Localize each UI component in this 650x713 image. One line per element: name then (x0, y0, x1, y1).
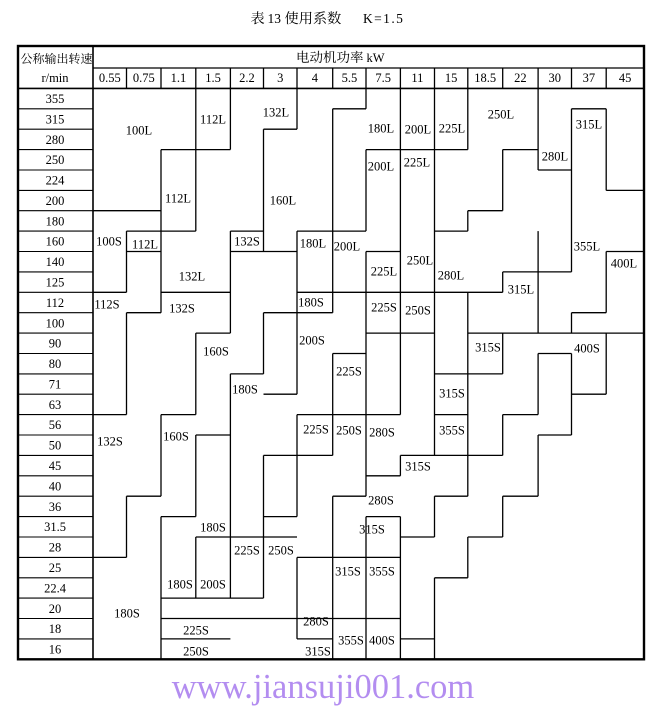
svg-text:250S: 250S (336, 424, 362, 438)
svg-text:63: 63 (49, 398, 62, 412)
svg-text:132S: 132S (97, 435, 123, 449)
svg-text:40: 40 (49, 479, 62, 493)
svg-text:225L: 225L (439, 122, 465, 136)
svg-text:13: 13 (268, 11, 282, 26)
svg-text:315L: 315L (576, 118, 602, 132)
svg-text:225S: 225S (234, 544, 260, 558)
svg-text:280: 280 (46, 133, 65, 147)
svg-text:132L: 132L (179, 270, 205, 284)
svg-text:315S: 315S (439, 387, 465, 401)
svg-text:200S: 200S (299, 334, 325, 348)
svg-text:180S: 180S (167, 578, 193, 592)
svg-text:200S: 200S (200, 578, 226, 592)
svg-text:1.5: 1.5 (205, 71, 221, 85)
svg-text:200: 200 (46, 194, 65, 208)
svg-text:45: 45 (49, 459, 62, 473)
svg-text:15: 15 (445, 71, 458, 85)
svg-text:315S: 315S (475, 341, 501, 355)
svg-text:36: 36 (49, 500, 62, 514)
svg-text:20: 20 (49, 602, 62, 616)
svg-text:22: 22 (514, 71, 527, 85)
svg-text:125: 125 (46, 276, 65, 290)
svg-text:28: 28 (49, 541, 62, 555)
svg-text:355L: 355L (574, 240, 600, 254)
svg-text:315: 315 (46, 112, 65, 126)
svg-text:kW: kW (367, 51, 385, 65)
svg-text:280S: 280S (368, 494, 394, 508)
svg-text:132S: 132S (169, 302, 195, 316)
svg-text:200L: 200L (334, 240, 360, 254)
svg-text:132S: 132S (234, 235, 260, 249)
svg-text:31.5: 31.5 (44, 520, 66, 534)
svg-text:315S: 315S (359, 523, 385, 537)
svg-text:7.5: 7.5 (375, 71, 391, 85)
svg-text:160S: 160S (163, 430, 189, 444)
svg-text:160: 160 (46, 235, 65, 249)
svg-text:22.4: 22.4 (44, 581, 67, 595)
svg-text:56: 56 (49, 418, 62, 432)
svg-text:225S: 225S (183, 624, 209, 638)
svg-text:90: 90 (49, 337, 62, 351)
svg-text:100: 100 (46, 316, 65, 330)
svg-text:400L: 400L (611, 257, 637, 271)
svg-text:180S: 180S (298, 296, 324, 310)
svg-text:18.5: 18.5 (474, 71, 496, 85)
svg-text:355: 355 (46, 92, 65, 106)
svg-text:140: 140 (46, 255, 65, 269)
svg-text:112L: 112L (200, 113, 226, 127)
svg-text:200L: 200L (405, 123, 431, 137)
svg-text:30: 30 (549, 71, 562, 85)
svg-text:160L: 160L (270, 194, 296, 208)
svg-text:K=1.5: K=1.5 (363, 11, 404, 26)
svg-text:1.1: 1.1 (171, 71, 187, 85)
svg-text:25: 25 (49, 561, 62, 575)
svg-text:180S: 180S (114, 607, 140, 621)
svg-text:112L: 112L (165, 192, 191, 206)
svg-text:280S: 280S (303, 615, 329, 629)
svg-text:160S: 160S (203, 345, 229, 359)
svg-text:355S: 355S (369, 565, 395, 579)
svg-text:112L: 112L (132, 238, 158, 252)
svg-text:250: 250 (46, 153, 65, 167)
svg-text:112: 112 (46, 296, 64, 310)
svg-text:132L: 132L (263, 106, 289, 120)
svg-text:100L: 100L (126, 124, 152, 138)
svg-text:4: 4 (312, 71, 319, 85)
svg-text:16: 16 (49, 643, 62, 657)
svg-text:3: 3 (277, 71, 283, 85)
svg-text:280S: 280S (369, 426, 395, 440)
svg-text:315S: 315S (305, 645, 331, 659)
svg-text:250L: 250L (488, 108, 514, 122)
svg-text:71: 71 (49, 378, 62, 392)
svg-text:225S: 225S (336, 365, 362, 379)
svg-text:400S: 400S (369, 634, 395, 648)
svg-text:180S: 180S (232, 383, 258, 397)
svg-text:200L: 200L (368, 160, 394, 174)
svg-text:280L: 280L (438, 269, 464, 283)
svg-text:180L: 180L (368, 122, 394, 136)
svg-text:11: 11 (411, 71, 423, 85)
svg-text:180L: 180L (300, 237, 326, 251)
svg-text:225S: 225S (303, 423, 329, 437)
svg-text:250S: 250S (405, 304, 431, 318)
svg-text:224: 224 (46, 174, 66, 188)
svg-text:50: 50 (49, 439, 62, 453)
svg-text:180: 180 (46, 214, 65, 228)
svg-text:r/min: r/min (41, 71, 69, 85)
svg-text:112S: 112S (94, 298, 119, 312)
svg-text:250S: 250S (268, 544, 294, 558)
svg-text:5.5: 5.5 (342, 71, 358, 85)
svg-text:250L: 250L (407, 254, 433, 268)
svg-text:45: 45 (619, 71, 632, 85)
svg-text:355S: 355S (338, 634, 364, 648)
svg-text:www.jiansuji001.com: www.jiansuji001.com (172, 668, 475, 706)
svg-text:80: 80 (49, 357, 62, 371)
svg-text:315L: 315L (508, 283, 534, 297)
svg-text:225S: 225S (371, 301, 397, 315)
svg-text:0.55: 0.55 (99, 71, 121, 85)
svg-text:225L: 225L (404, 156, 430, 170)
svg-text:315S: 315S (335, 565, 361, 579)
svg-text:400S: 400S (574, 342, 600, 356)
svg-text:18: 18 (49, 622, 62, 636)
svg-text:2.2: 2.2 (239, 71, 255, 85)
svg-text:100S: 100S (96, 235, 122, 249)
svg-text:225L: 225L (371, 265, 397, 279)
svg-text:280L: 280L (542, 150, 568, 164)
svg-text:0.75: 0.75 (133, 71, 155, 85)
svg-text:315S: 315S (405, 460, 431, 474)
svg-text:180S: 180S (200, 521, 226, 535)
svg-text:355S: 355S (439, 424, 465, 438)
svg-text:250S: 250S (183, 645, 209, 659)
svg-text:37: 37 (583, 71, 596, 85)
